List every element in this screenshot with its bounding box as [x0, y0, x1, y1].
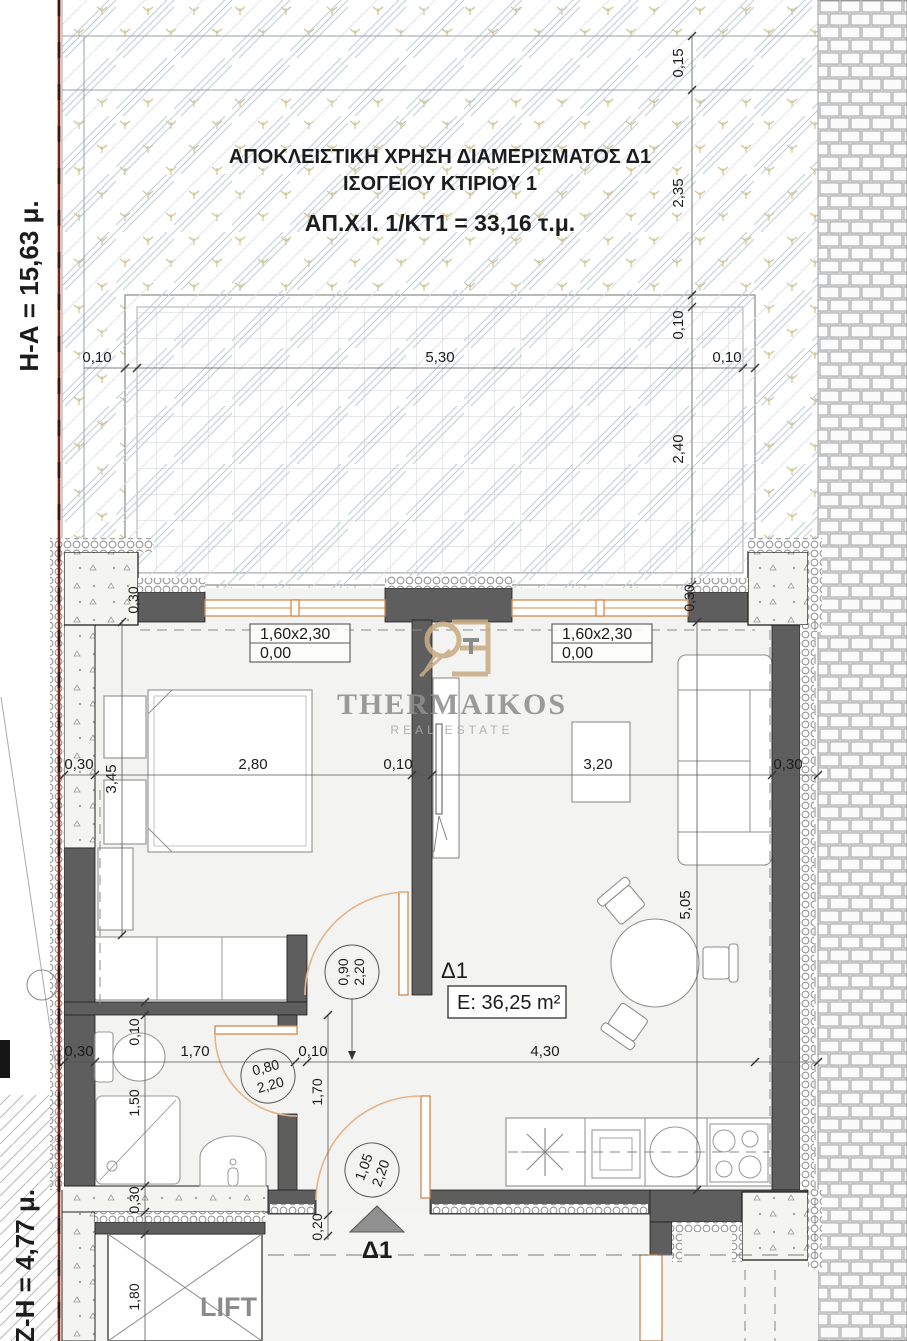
window-living [512, 600, 688, 616]
dim-0-30: 0,30 [681, 584, 697, 611]
chair [703, 944, 738, 982]
dim-4-30: 4,30 [530, 1043, 559, 1060]
courtyard-title-line1: ΑΠΟΚΛΕΙΣΤΙΚΗ ΧΡΗΣΗ ΔΙΑΜΕΡΙΣΜΑΤΟΣ Δ1 [229, 146, 651, 168]
unit-area-label: E: 36,25 m² [457, 992, 561, 1014]
oven [592, 1130, 640, 1178]
dim-1-70: 1,70 [309, 1078, 325, 1105]
logo-tagline: REAL ESTATE [390, 723, 513, 737]
dim-0-10: 0,10 [126, 1018, 142, 1045]
nightstand [104, 696, 146, 758]
logo-name: THERMAIKOS [337, 688, 567, 721]
lift-label: LIFT [200, 1292, 257, 1322]
sink [200, 1136, 266, 1186]
unit-id-label: Δ1 [441, 958, 468, 983]
entrance-unit-label: Δ1 [362, 1237, 393, 1264]
dim-5-05: 5,05 [677, 890, 694, 919]
dim-0-30: 0,30 [773, 756, 802, 773]
dim-1-50: 1,50 [126, 1089, 142, 1116]
dim-0-30: 0,30 [125, 586, 141, 613]
window-size: 1,60x2,30 [260, 626, 330, 643]
dim-0-10: 0,10 [298, 1043, 327, 1060]
dim-2-35: 2,35 [670, 178, 687, 207]
boundary-length-top: Η-Α = 15,63 μ. [14, 200, 44, 371]
concrete-column [748, 552, 808, 625]
bed [148, 690, 312, 852]
window-size: 1,60x2,30 [562, 626, 632, 643]
dim-0-10: 0,10 [712, 349, 741, 366]
floor-plan-drawing: ΑΠΟΚΛΕΙΣΤΙΚΗ ΧΡΗΣΗ ΔΙΑΜΕΡΙΣΜΑΤΟΣ Δ1 ΙΣΟΓ… [0, 0, 907, 1341]
dim-2-80: 2,80 [238, 756, 267, 773]
dim-0-30: 0,30 [64, 1043, 93, 1060]
dining-table [611, 919, 699, 1007]
washer [650, 1127, 700, 1177]
dim-3-20: 3,20 [583, 756, 612, 773]
dim-0-10: 0,10 [670, 310, 687, 339]
window-bedroom [205, 600, 385, 616]
toilet-tank [95, 1032, 113, 1082]
sofa [678, 655, 772, 865]
neighbor-block [0, 1040, 10, 1078]
concrete-column [742, 1192, 808, 1260]
exterior-brick-wall [818, 0, 907, 1341]
dim-5-30: 5,30 [425, 349, 454, 366]
courtyard-area-label: ΑΠ.Χ.Ι. 1/ΚΤ1 = 33,16 τ.μ. [305, 210, 575, 236]
courtyard-title-line2: ΙΣΟΓΕΙΟΥ ΚΤΙΡΙΟΥ 1 [343, 173, 537, 195]
dim-1-70: 1,70 [180, 1043, 209, 1060]
dresser [98, 848, 133, 930]
wardrobe [92, 937, 287, 1000]
floor-plan-page: ΑΠΟΚΛΕΙΣΤΙΚΗ ΧΡΗΣΗ ΔΙΑΜΕΡΙΣΜΑΤΟΣ Δ1 ΙΣΟΓ… [0, 0, 907, 1341]
stairwell-door [640, 1255, 662, 1341]
dim-0-10: 0,10 [82, 349, 111, 366]
window-sill-level: 0,00 [562, 645, 593, 662]
exclusive-courtyard: ΑΠΟΚΛΕΙΣΤΙΚΗ ΧΡΗΣΗ ΔΙΑΜΕΡΙΣΜΑΤΟΣ Δ1 ΙΣΟΓ… [62, 0, 818, 588]
dim-0-30: 0,30 [126, 1186, 142, 1213]
window-label-bedroom: 1,60x2,30 0,00 [250, 624, 350, 662]
dim-3-45: 3,45 [103, 764, 120, 793]
kitchen-counter [506, 1118, 772, 1186]
window-sill-level: 0,00 [260, 645, 291, 662]
dim-0-20: 0,20 [309, 1213, 325, 1240]
dim-0-15: 0,15 [670, 48, 687, 77]
dim-1-80: 1,80 [126, 1283, 142, 1310]
window-label-living: 1,60x2,30 0,00 [552, 624, 652, 662]
dim-0-30: 0,30 [64, 756, 93, 773]
dim-0-10: 0,10 [383, 756, 412, 773]
door-width: 0,90 [335, 958, 351, 985]
door-height: 2,20 [351, 958, 367, 985]
dim-2-40: 2,40 [670, 434, 687, 463]
boundary-length-bottom: Ζ-Η = 4,77 μ. [10, 1189, 40, 1341]
